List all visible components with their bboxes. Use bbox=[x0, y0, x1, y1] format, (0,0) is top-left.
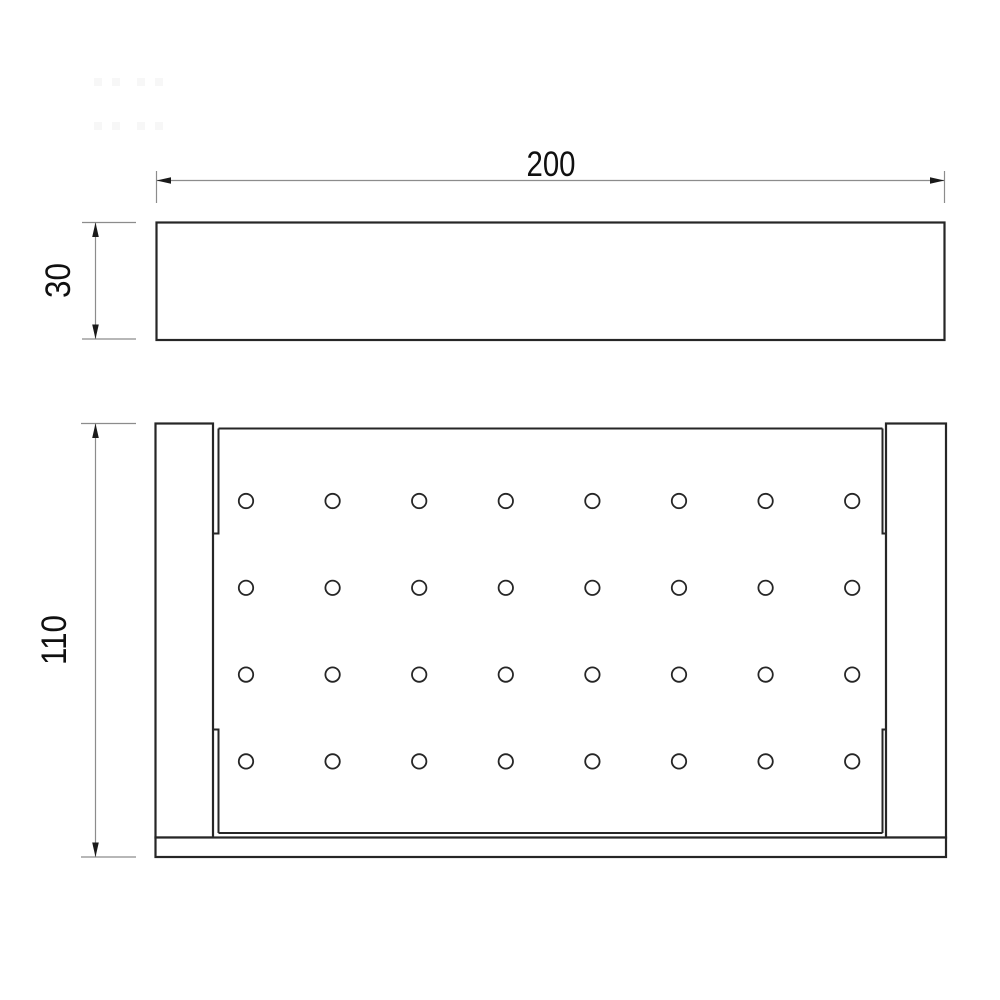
hole bbox=[758, 494, 772, 508]
hole bbox=[845, 494, 859, 508]
watermark-dots bbox=[94, 78, 163, 130]
dimension-depth: 30 bbox=[39, 223, 136, 340]
hole bbox=[585, 581, 599, 595]
hole bbox=[845, 667, 859, 681]
left-hanger-ear bbox=[156, 424, 214, 838]
depth-dim-label: 30 bbox=[39, 263, 78, 298]
arrow-up-icon bbox=[92, 223, 99, 238]
top-view bbox=[157, 223, 945, 341]
right-hanger-ear bbox=[886, 424, 946, 838]
arrow-down-icon bbox=[92, 843, 99, 858]
hole bbox=[758, 667, 772, 681]
hole bbox=[239, 754, 253, 768]
hole bbox=[325, 494, 339, 508]
hole bbox=[239, 581, 253, 595]
hole bbox=[499, 667, 513, 681]
front-view bbox=[156, 424, 947, 858]
hole bbox=[672, 581, 686, 595]
top-view-outline bbox=[157, 223, 945, 341]
bottom-rail bbox=[156, 838, 947, 858]
hole bbox=[845, 581, 859, 595]
hole bbox=[412, 667, 426, 681]
technical-drawing: 200 30 110 bbox=[0, 0, 1000, 1000]
hole bbox=[499, 581, 513, 595]
hole bbox=[758, 581, 772, 595]
hole bbox=[325, 754, 339, 768]
hole bbox=[672, 667, 686, 681]
dimension-height: 110 bbox=[35, 424, 136, 858]
hole bbox=[412, 494, 426, 508]
hole bbox=[239, 494, 253, 508]
hole bbox=[585, 754, 599, 768]
hole bbox=[585, 667, 599, 681]
hole bbox=[845, 754, 859, 768]
hole bbox=[412, 754, 426, 768]
hole bbox=[499, 754, 513, 768]
hole bbox=[672, 494, 686, 508]
hole bbox=[325, 667, 339, 681]
dimension-width: 200 bbox=[157, 145, 945, 203]
hole bbox=[585, 494, 599, 508]
arrow-up-icon bbox=[92, 424, 99, 439]
width-dim-label: 200 bbox=[527, 145, 576, 184]
arrow-left-icon bbox=[157, 177, 172, 184]
hole bbox=[758, 754, 772, 768]
arrow-down-icon bbox=[92, 325, 99, 340]
hole-grid bbox=[239, 494, 860, 769]
hole bbox=[672, 754, 686, 768]
arrow-right-icon bbox=[930, 177, 945, 184]
hole bbox=[325, 581, 339, 595]
height-dim-label: 110 bbox=[35, 615, 74, 665]
hole bbox=[499, 494, 513, 508]
hole bbox=[239, 667, 253, 681]
hole bbox=[412, 581, 426, 595]
